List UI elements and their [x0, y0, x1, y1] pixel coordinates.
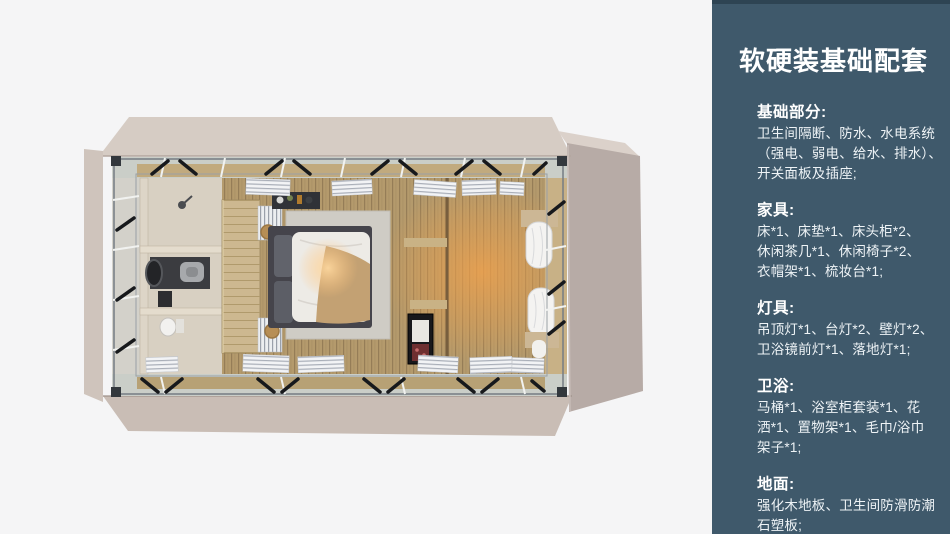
louver-top-5 [500, 181, 525, 195]
info-panel: 软硬装基础配套 基础部分: 卫生间隔断、防水、水电系统 （强电、弱电、给水、排水… [712, 0, 950, 534]
pillow-bottom [274, 281, 293, 323]
spec-heading: 卫浴: [757, 374, 938, 396]
spec-line: 床*1、床垫*1、床头柜*2、 [757, 222, 938, 242]
cabinet-bottle-1 [415, 348, 419, 352]
louver-bottom-4 [418, 355, 459, 373]
spec-heading: 地面: [757, 472, 938, 494]
spec-line: 卫生间隔断、防水、水电系统 [757, 124, 938, 144]
exterior-wall-right [567, 143, 643, 412]
curtain-top [526, 222, 552, 268]
spec-line: 卫浴镜前灯*1、落地灯*1; [757, 340, 938, 360]
spec-line: 石塑板; [757, 516, 938, 534]
louver-bottom-5 [470, 356, 513, 373]
spec-line: 架子*1; [757, 438, 938, 458]
spec-line: 吊顶灯*1、台灯*2、壁灯*2、 [757, 320, 938, 340]
vanity-sink-basin [186, 267, 198, 277]
louver-bottom-6 [512, 357, 545, 373]
exterior-wall-left [84, 149, 103, 402]
louver-top-3 [413, 180, 456, 198]
decor-bottle [297, 195, 302, 204]
spec-section-floor: 地面: 强化木地板、卫生间防滑防潮 石塑板; [757, 472, 938, 534]
bathroom-partition-2 [140, 308, 222, 315]
toilet [160, 318, 176, 336]
vanity-stool [158, 291, 172, 307]
spec-section-basics: 基础部分: 卫生间隔断、防水、水电系统 （强电、弱电、给水、排水）、 开关面板及… [757, 100, 938, 184]
partition-grain [222, 200, 260, 353]
spec-line: 衣帽架*1、梳妆台*1; [757, 262, 938, 282]
decor-vase [277, 197, 284, 204]
spec-section-bathroom: 卫浴: 马桶*1、浴室柜套装*1、花 洒*1、置物架*1、毛巾/浴巾 架子*1; [757, 374, 938, 458]
spec-line: 开关面板及插座; [757, 164, 938, 184]
pillow-top [274, 235, 293, 277]
spec-heading: 灯具: [757, 296, 938, 318]
spec-line: 休闲茶几*1、休闲椅子*2、 [757, 242, 938, 262]
spec-line: 强化木地板、卫生间防滑防潮 [757, 496, 938, 516]
louver-bottom-2 [243, 354, 290, 373]
louver-top-4 [462, 179, 497, 195]
spec-line: 马桶*1、浴室柜套装*1、花 [757, 398, 938, 418]
spec-sections: 基础部分: 卫生间隔断、防水、水电系统 （强电、弱电、给水、排水）、 开关面板及… [757, 100, 938, 534]
bed-group [268, 211, 390, 339]
shelf-upper [404, 238, 447, 247]
bathroom-partition-1 [140, 246, 222, 253]
exterior-wall-top [103, 117, 571, 156]
spec-heading: 家具: [757, 198, 938, 220]
decor-bowl [306, 197, 313, 204]
headboard-partition [222, 200, 260, 353]
spec-section-furniture: 家具: 床*1、床垫*1、床头柜*2、 休闲茶几*1、休闲椅子*2、 衣帽架*1… [757, 198, 938, 282]
spec-line: （强电、弱电、给水、排水）、 [757, 144, 938, 164]
lamp-highlight [298, 238, 358, 298]
spec-line: 洒*1、置物架*1、毛巾/浴巾 [757, 418, 938, 438]
louver-bottom-1 [146, 356, 179, 372]
bottom-wall-inner-face [137, 377, 545, 389]
panel-top-edge [712, 0, 950, 4]
louver-bottom-3 [298, 355, 345, 373]
vanity-mirror [146, 260, 162, 286]
stage: 软硬装基础配套 基础部分: 卫生间隔断、防水、水电系统 （强电、弱电、给水、排水… [0, 0, 950, 534]
panel-title: 软硬装基础配套 [712, 0, 950, 78]
spec-heading: 基础部分: [757, 100, 938, 122]
exterior-wall-bottom [103, 396, 572, 436]
floorplan-render [0, 0, 713, 534]
spec-section-lighting: 灯具: 吊顶灯*1、台灯*2、壁灯*2、 卫浴镜前灯*1、落地灯*1; [757, 296, 938, 360]
shelf-lower [410, 300, 447, 309]
towel-rolls [532, 340, 546, 358]
louver-top-1 [246, 178, 291, 196]
toilet-tank [176, 319, 184, 333]
cabinet-shelf-white [412, 320, 429, 342]
louver-top-2 [332, 179, 373, 196]
